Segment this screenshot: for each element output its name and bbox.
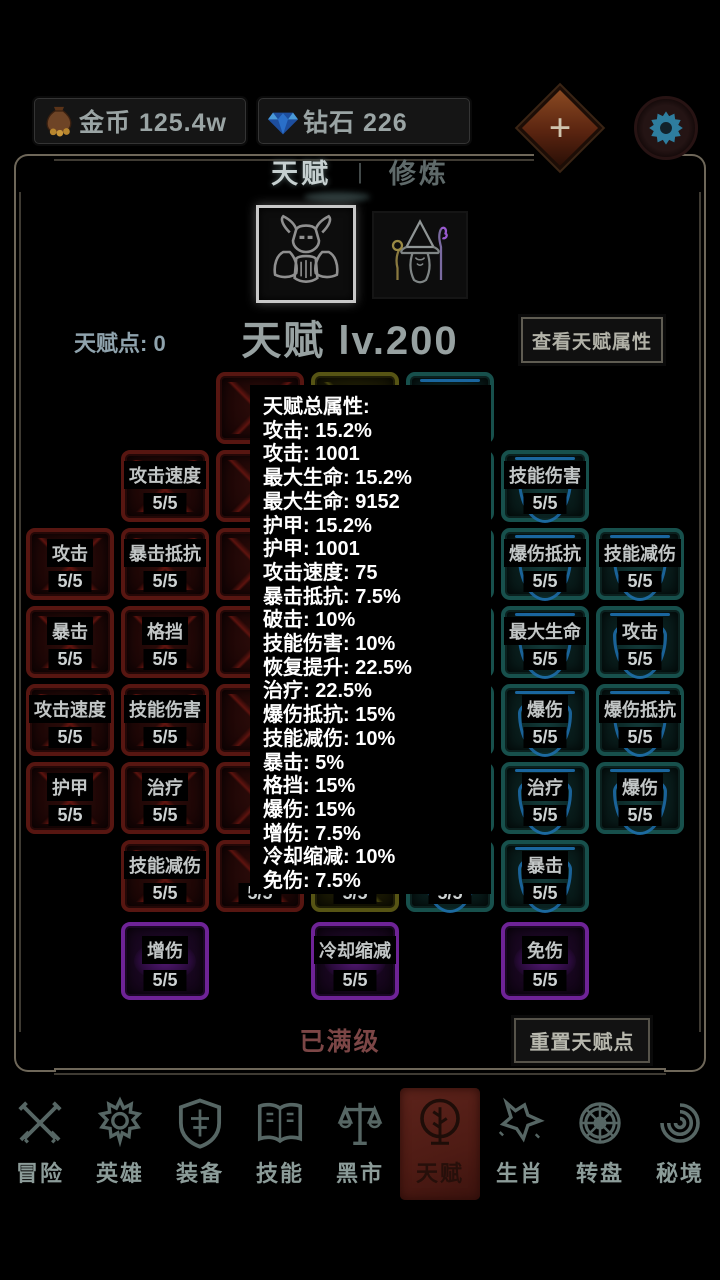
- nav-item-冒险[interactable]: 冒险: [0, 1090, 80, 1210]
- talent-node-label: 攻击速度: [124, 461, 206, 489]
- talent-node-label: 护甲: [47, 773, 93, 801]
- nav-item-生肖[interactable]: 生肖: [480, 1090, 560, 1210]
- talent-node-level: 5/5: [143, 883, 186, 904]
- nav-item-label: 生肖: [496, 1156, 544, 1188]
- talent-node-label: 爆伤: [522, 695, 568, 723]
- max-level-status: 已满级: [260, 1022, 420, 1058]
- nav-item-转盘[interactable]: 转盘: [560, 1090, 640, 1210]
- talent-node-攻击[interactable]: 攻击5/5: [596, 606, 684, 678]
- talent-node-level: 5/5: [618, 649, 661, 670]
- talent-node-level: 5/5: [618, 727, 661, 748]
- talent-node-治疗[interactable]: 治疗5/5: [501, 762, 589, 834]
- talent-node-level: 5/5: [48, 571, 91, 592]
- talent-node-label: 技能减伤: [124, 851, 206, 879]
- talent-node-level: 5/5: [143, 493, 186, 514]
- talent-node-label: 免伤: [522, 936, 568, 964]
- popup-stat-line: 爆伤: 15%: [263, 799, 491, 823]
- popup-stat-line: 冷却缩减: 10%: [263, 846, 491, 870]
- popup-stat-line: 免伤: 7.5%: [263, 870, 491, 894]
- talent-stats-popup[interactable]: 天赋总属性:攻击: 15.2%攻击: 1001最大生命: 15.2%最大生命: …: [250, 385, 491, 894]
- nav-item-英雄[interactable]: 英雄: [80, 1090, 160, 1210]
- nav-item-秘境[interactable]: 秘境: [640, 1090, 720, 1210]
- talent-node-level: 5/5: [618, 571, 661, 592]
- talent-node-技能伤害[interactable]: 技能伤害5/5: [501, 450, 589, 522]
- talent-node-level: 5/5: [523, 493, 566, 514]
- talent-node-label: 爆伤: [617, 773, 663, 801]
- talent-node-label: 爆伤抵抗: [504, 539, 586, 567]
- talent-node-技能伤害[interactable]: 技能伤害5/5: [121, 684, 209, 756]
- talent-node-level: 5/5: [333, 970, 376, 991]
- shield-icon: [173, 1096, 227, 1150]
- talent-node-最大生命[interactable]: 最大生命5/5: [501, 606, 589, 678]
- bottom-nav-bar: 冒险英雄装备技能黑市天赋生肖转盘秘境: [0, 1090, 720, 1210]
- talent-node-level: 5/5: [143, 571, 186, 592]
- popup-stat-line: 技能减伤: 10%: [263, 728, 491, 752]
- talent-node-label: 技能伤害: [504, 461, 586, 489]
- talent-node-level: 5/5: [143, 727, 186, 748]
- talent-node-攻击速度[interactable]: 攻击速度5/5: [121, 450, 209, 522]
- popup-stat-line: 治疗: 22.5%: [263, 680, 491, 704]
- popup-stat-line: 技能伤害: 10%: [263, 633, 491, 657]
- popup-stat-line: 最大生命: 15.2%: [263, 467, 491, 491]
- talent-node-治疗[interactable]: 治疗5/5: [121, 762, 209, 834]
- talent-node-爆伤抵抗[interactable]: 爆伤抵抗5/5: [596, 684, 684, 756]
- talent-node-level: 5/5: [523, 571, 566, 592]
- talent-node-label: 技能减伤: [599, 539, 681, 567]
- popup-stat-line: 攻击: 1001: [263, 443, 491, 467]
- talent-node-level: 5/5: [143, 970, 186, 991]
- crossed-swords-icon: [13, 1096, 67, 1150]
- talent-node-label: 冷却缩减: [314, 936, 396, 964]
- talent-node-格挡[interactable]: 格挡5/5: [121, 606, 209, 678]
- nav-item-label: 冒险: [16, 1156, 64, 1188]
- nav-item-label: 天赋: [416, 1156, 464, 1188]
- nav-item-装备[interactable]: 装备: [160, 1090, 240, 1210]
- talent-node-技能减伤[interactable]: 技能减伤5/5: [596, 528, 684, 600]
- talent-node-暴击[interactable]: 暴击5/5: [501, 840, 589, 912]
- nav-item-天赋[interactable]: 天赋: [400, 1088, 480, 1200]
- talent-node-爆伤抵抗[interactable]: 爆伤抵抗5/5: [501, 528, 589, 600]
- popup-stat-line: 护甲: 1001: [263, 538, 491, 562]
- vortex-icon: [653, 1096, 707, 1150]
- popup-stat-line: 攻击速度: 75: [263, 562, 491, 586]
- popup-stat-line: 暴击抵抗: 7.5%: [263, 586, 491, 610]
- talent-node-label: 攻击: [617, 617, 663, 645]
- talent-node-level: 5/5: [523, 727, 566, 748]
- talent-node-暴击[interactable]: 暴击5/5: [26, 606, 114, 678]
- talent-node-暴击抵抗[interactable]: 暴击抵抗5/5: [121, 528, 209, 600]
- tree-icon: [413, 1096, 467, 1150]
- talent-node-label: 治疗: [522, 773, 568, 801]
- talent-node-level: 5/5: [48, 805, 91, 826]
- talent-node-label: 格挡: [142, 617, 188, 645]
- talent-node-爆伤[interactable]: 爆伤5/5: [501, 684, 589, 756]
- talent-node-技能减伤[interactable]: 技能减伤5/5: [121, 840, 209, 912]
- popup-stat-line: 破击: 10%: [263, 609, 491, 633]
- wolf-icon: [493, 1096, 547, 1150]
- popup-stat-line: 恢复提升: 22.5%: [263, 657, 491, 681]
- hero-icon: [93, 1096, 147, 1150]
- nav-item-label: 转盘: [576, 1156, 624, 1188]
- talent-node-label: 暴击: [47, 617, 93, 645]
- popup-title: 天赋总属性:: [263, 385, 491, 420]
- nav-item-label: 装备: [176, 1156, 224, 1188]
- popup-stat-line: 攻击: 15.2%: [263, 420, 491, 444]
- talent-node-level: 5/5: [48, 727, 91, 748]
- talent-node-增伤[interactable]: 增伤5/5: [121, 922, 209, 1000]
- nav-item-技能[interactable]: 技能: [240, 1090, 320, 1210]
- nav-item-label: 秘境: [656, 1156, 704, 1188]
- talent-node-免伤[interactable]: 免伤5/5: [501, 922, 589, 1000]
- book-icon: [253, 1096, 307, 1150]
- talent-node-护甲[interactable]: 护甲5/5: [26, 762, 114, 834]
- talent-node-label: 攻击: [47, 539, 93, 567]
- talent-node-冷却缩减[interactable]: 冷却缩减5/5: [311, 922, 399, 1000]
- talent-node-label: 攻击速度: [29, 695, 111, 723]
- talent-node-label: 最大生命: [504, 617, 586, 645]
- wheel-icon: [573, 1096, 627, 1150]
- talent-node-level: 5/5: [523, 805, 566, 826]
- nav-item-黑市[interactable]: 黑市: [320, 1090, 400, 1210]
- talent-node-label: 治疗: [142, 773, 188, 801]
- reset-talent-points-button[interactable]: 重置天赋点: [514, 1018, 650, 1063]
- talent-node-攻击[interactable]: 攻击5/5: [26, 528, 114, 600]
- nav-item-label: 黑市: [336, 1156, 384, 1188]
- popup-stat-line: 爆伤抵抗: 15%: [263, 704, 491, 728]
- talent-node-level: 5/5: [143, 805, 186, 826]
- popup-stat-line: 增伤: 7.5%: [263, 823, 491, 847]
- talent-node-level: 5/5: [523, 883, 566, 904]
- talent-node-label: 暴击: [522, 851, 568, 879]
- talent-node-level: 5/5: [143, 649, 186, 670]
- scales-icon: [333, 1096, 387, 1150]
- talent-node-level: 5/5: [523, 649, 566, 670]
- popup-stat-line: 格挡: 15%: [263, 775, 491, 799]
- talent-node-label: 暴击抵抗: [124, 539, 206, 567]
- talent-node-label: 爆伤抵抗: [599, 695, 681, 723]
- talent-node-攻击速度[interactable]: 攻击速度5/5: [26, 684, 114, 756]
- popup-stat-line: 护甲: 15.2%: [263, 515, 491, 539]
- talent-node-label: 技能伤害: [124, 695, 206, 723]
- nav-item-label: 技能: [256, 1156, 304, 1188]
- talent-node-label: 增伤: [142, 936, 188, 964]
- popup-stat-line: 最大生命: 9152: [263, 491, 491, 515]
- talent-node-level: 5/5: [48, 649, 91, 670]
- talent-node-爆伤[interactable]: 爆伤5/5: [596, 762, 684, 834]
- talent-screen: 金币 125.4w 钻石 226 + 天赋 | 修炼: [0, 0, 720, 1280]
- nav-item-label: 英雄: [96, 1156, 144, 1188]
- popup-stat-line: 暴击: 5%: [263, 752, 491, 776]
- talent-node-level: 5/5: [618, 805, 661, 826]
- talent-node-level: 5/5: [523, 970, 566, 991]
